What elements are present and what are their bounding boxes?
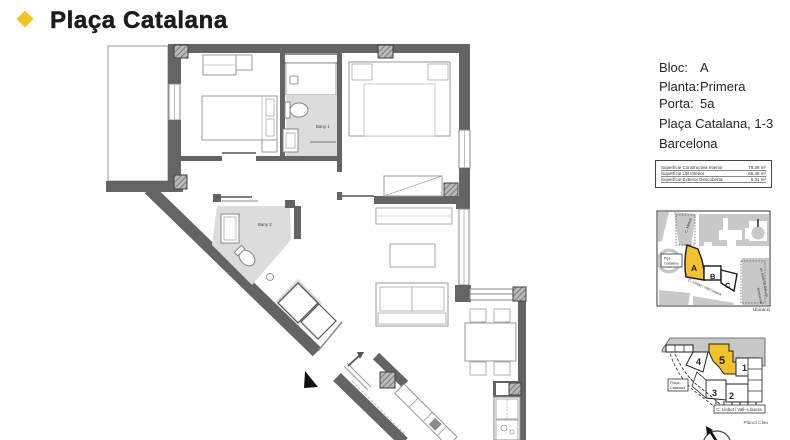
svg-text:Ubicació: Ubicació <box>753 307 770 312</box>
svg-text:4: 4 <box>696 357 701 367</box>
svg-text:C. Llobet i Vall--Llosera: C. Llobet i Vall--Llosera <box>716 407 762 412</box>
svg-text:Catalana: Catalana <box>670 386 686 390</box>
svg-text:C: C <box>725 281 731 290</box>
svg-text:Catalana: Catalana <box>664 262 678 266</box>
svg-text:B: B <box>710 272 716 281</box>
svg-text:Plaça: Plaça <box>670 381 680 385</box>
svg-text:A: A <box>691 263 697 273</box>
svg-text:5: 5 <box>719 355 725 367</box>
svg-text:1: 1 <box>742 363 747 373</box>
svg-text:Pça: Pça <box>664 257 670 261</box>
svg-text:Plànol Clau: Plànol Clau <box>743 420 768 426</box>
svg-text:3: 3 <box>712 388 717 398</box>
svg-text:Bany 2: Bany 2 <box>258 222 272 227</box>
svg-text:Bany 1: Bany 1 <box>316 124 330 129</box>
svg-text:2: 2 <box>729 391 734 401</box>
